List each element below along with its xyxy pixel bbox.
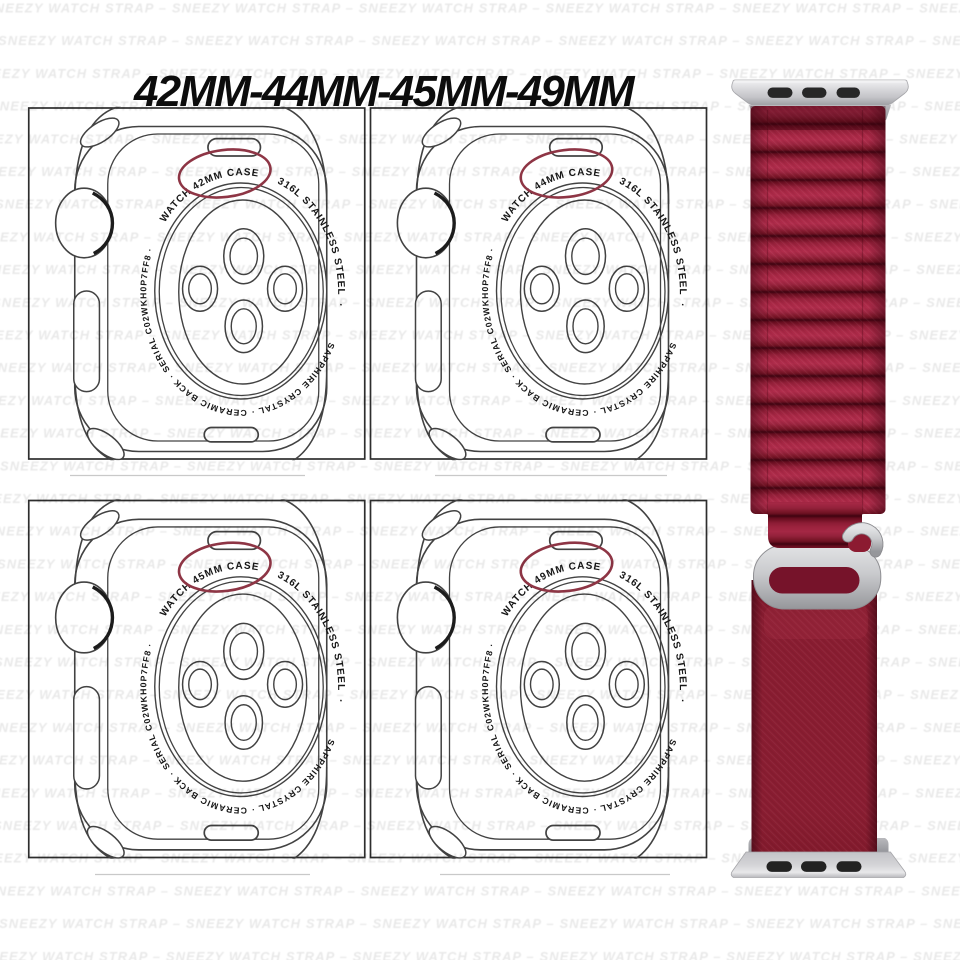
- svg-text:SNEEZY WATCH STRAP – SNEEZY WA: SNEEZY WATCH STRAP – SNEEZY WATCH STRAP …: [0, 883, 960, 898]
- svg-text:SNEEZY WATCH STRAP – SNEEZY WA: SNEEZY WATCH STRAP – SNEEZY WATCH STRAP …: [0, 916, 960, 931]
- svg-text:SNEEZY WATCH STRAP – SNEEZY WA: SNEEZY WATCH STRAP – SNEEZY WATCH STRAP …: [0, 949, 960, 960]
- svg-text:42MM-44MM-45MM-49MM: 42MM-44MM-45MM-49MM: [133, 67, 636, 116]
- svg-text:SNEEZY WATCH STRAP – SNEEZY WA: SNEEZY WATCH STRAP – SNEEZY WATCH STRAP …: [0, 1, 960, 16]
- svg-text:SNEEZY WATCH STRAP – SNEEZY WA: SNEEZY WATCH STRAP – SNEEZY WATCH STRAP …: [0, 33, 960, 48]
